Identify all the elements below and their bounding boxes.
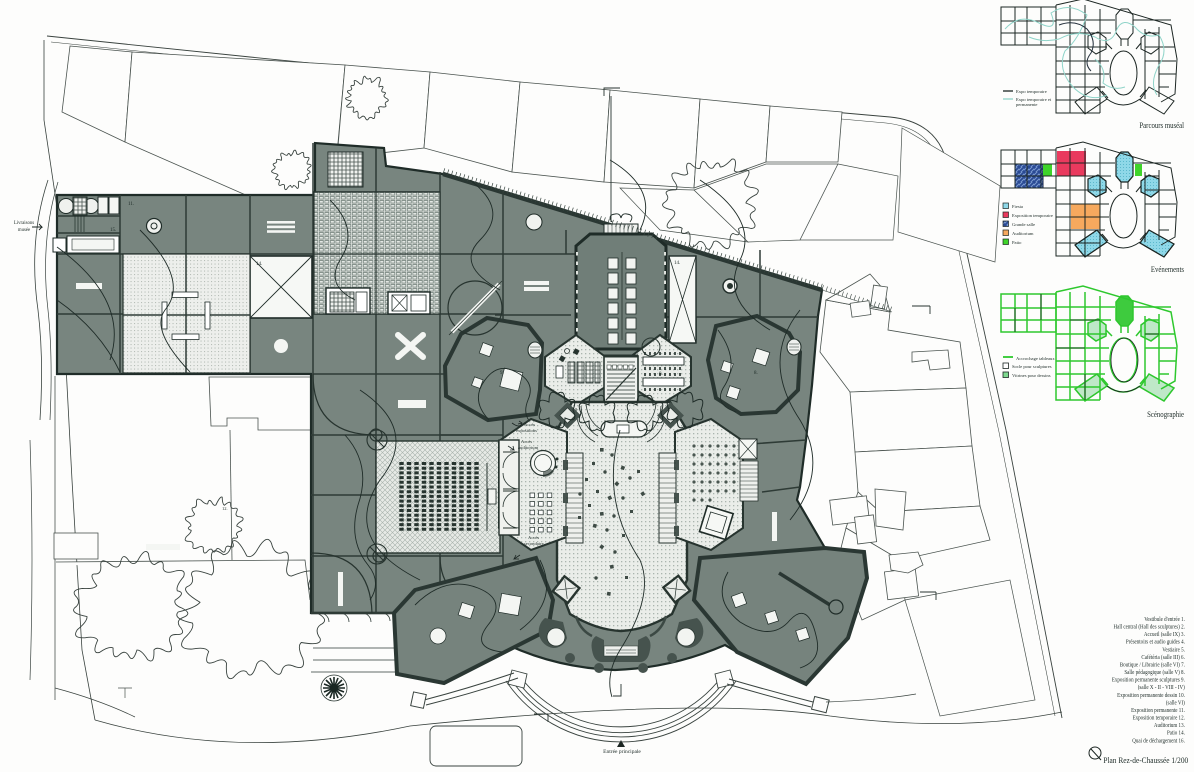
svg-text:Vitrines pour dessins: Vitrines pour dessins [1012,373,1051,378]
svg-text:14.: 14. [256,262,262,267]
svg-text:14.: 14. [674,261,680,266]
svg-text:Vestibule d'entrée 1.: Vestibule d'entrée 1. [1144,616,1185,623]
svg-text:Auditorium: Auditorium [1012,231,1034,236]
svg-text:Exposition permanente 11.: Exposition permanente 11. [1131,707,1185,714]
svg-text:Expo temporaire: Expo temporaire [1016,89,1047,94]
svg-text:Présentoirs et audio guides 4.: Présentoirs et audio guides 4. [1126,639,1185,646]
svg-text:Accrochage tableaux: Accrochage tableaux [1016,356,1055,361]
svg-text:Cafétéria (salle III) 6.: Cafétéria (salle III) 6. [1141,653,1185,661]
svg-text:Fiesta: Fiesta [1012,204,1023,209]
svg-text:Quai de déchargement 16.: Quai de déchargement 16. [1132,738,1185,745]
svg-text:Evénements: Evénements [1151,264,1184,274]
svg-text:musée: musée [18,228,30,233]
svg-text:auditorium: auditorium [518,445,539,450]
svg-text:Accès: Accès [528,535,539,540]
svg-text:expositions: expositions [516,428,537,433]
svg-text:Boutique / Librairie (salle VI: Boutique / Librairie (salle VI) 7. [1120,661,1186,669]
svg-text:Exposition permanente dessin 1: Exposition permanente dessin 10. [1117,692,1185,699]
svg-text:15.: 15. [110,228,116,233]
svg-text:Exposition temporaire: Exposition temporaire [1012,213,1053,218]
svg-text:8.: 8. [659,372,663,377]
svg-text:13.: 13. [420,494,426,499]
svg-text:Socle pour sculptures: Socle pour sculptures [1012,364,1052,369]
svg-text:permanente: permanente [1016,102,1037,107]
svg-text:Auditorium 13.: Auditorium 13. [1154,723,1185,730]
svg-text:Plan Rez-de-Chaussée 1/200: Plan Rez-de-Chaussée 1/200 [1103,756,1188,765]
svg-text:Parcours muséal: Parcours muséal [1139,120,1184,130]
svg-text:12.: 12. [222,506,228,511]
svg-text:8.: 8. [754,371,758,376]
svg-text:Accueil (salle IX) 3.: Accueil (salle IX) 3. [1144,631,1185,639]
svg-text:Salle pédagogique (salle V) 8.: Salle pédagogique (salle V) 8. [1124,668,1185,676]
svg-text:secondaire: secondaire [524,541,544,546]
svg-text:(salle VI): (salle VI) [1166,699,1185,707]
svg-text:Patio 14.: Patio 14. [1167,730,1185,737]
svg-text:Scénographie: Scénographie [1147,409,1185,419]
svg-text:Accès: Accès [521,439,532,444]
svg-text:Vestiaire 5.: Vestiaire 5. [1162,647,1185,654]
svg-text:Livraisons: Livraisons [14,221,34,226]
svg-text:Accès: Accès [524,422,535,427]
svg-text:Hall central (Hall des sculptu: Hall central (Hall des sculptures) 2. [1114,623,1186,631]
svg-text:11.: 11. [128,202,134,207]
svg-text:Grande salle: Grande salle [1012,222,1035,227]
svg-text:Entrée principale: Entrée principale [603,749,641,755]
svg-text:9.: 9. [500,371,504,376]
svg-text:Patio: Patio [1012,240,1022,245]
svg-text:(salle X - II - VIII - IV): (salle X - II - VIII - IV) [1138,684,1185,692]
svg-text:Exposition temporaire 12.: Exposition temporaire 12. [1133,715,1186,722]
svg-text:Exposition permanente sculptur: Exposition permanente sculptures 9. [1112,677,1185,684]
